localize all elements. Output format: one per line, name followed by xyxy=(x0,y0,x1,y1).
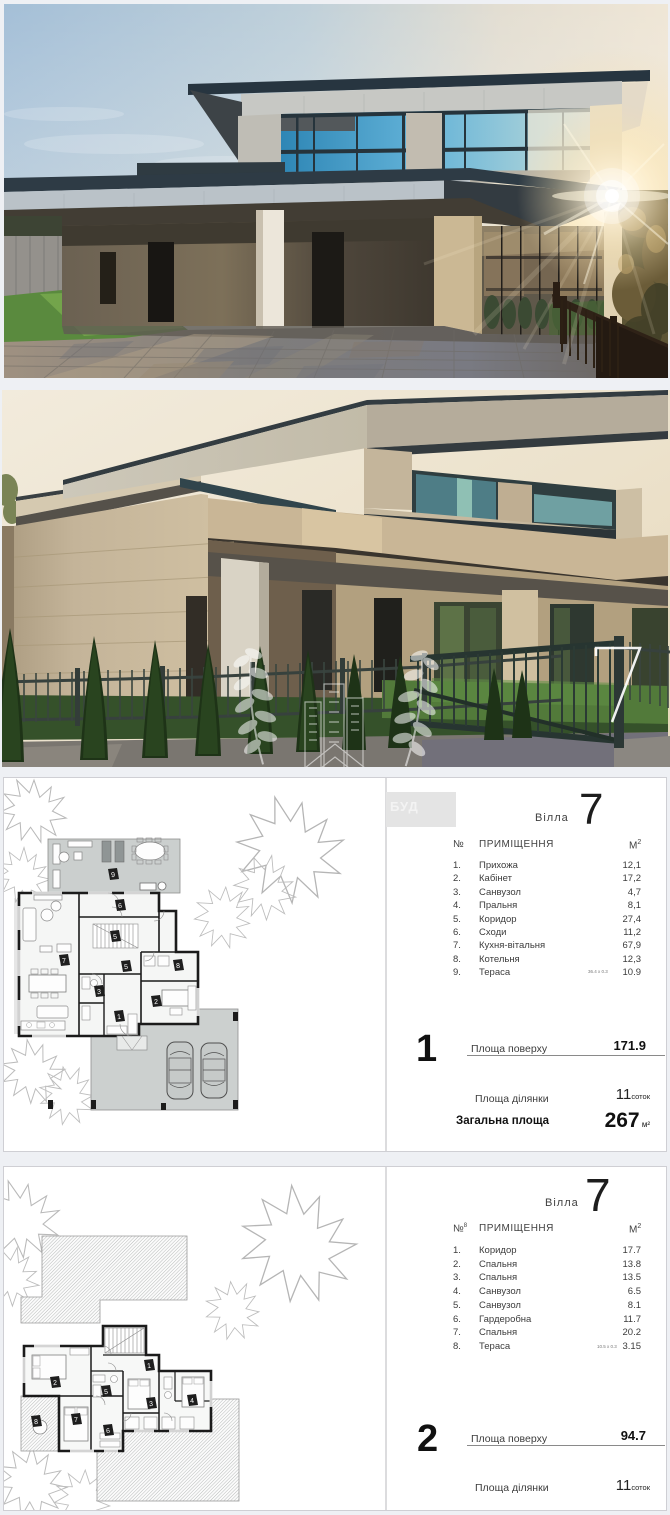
svg-text:6: 6 xyxy=(118,903,122,910)
svg-text:8: 8 xyxy=(34,1419,38,1426)
svg-text:4: 4 xyxy=(190,1398,194,1405)
svg-text:3: 3 xyxy=(149,1401,153,1408)
svg-text:8: 8 xyxy=(176,963,180,970)
svg-text:3: 3 xyxy=(97,989,101,996)
svg-text:6: 6 xyxy=(106,1428,110,1435)
svg-text:7: 7 xyxy=(62,958,66,965)
svg-text:7: 7 xyxy=(74,1417,78,1424)
svg-text:5: 5 xyxy=(104,1389,108,1396)
svg-text:2: 2 xyxy=(53,1380,57,1387)
svg-text:9: 9 xyxy=(111,872,115,879)
svg-text:1: 1 xyxy=(117,1014,121,1021)
svg-text:5: 5 xyxy=(124,964,128,971)
svg-text:2: 2 xyxy=(154,999,158,1006)
svg-text:1: 1 xyxy=(147,1363,151,1370)
svg-text:5: 5 xyxy=(113,934,117,941)
